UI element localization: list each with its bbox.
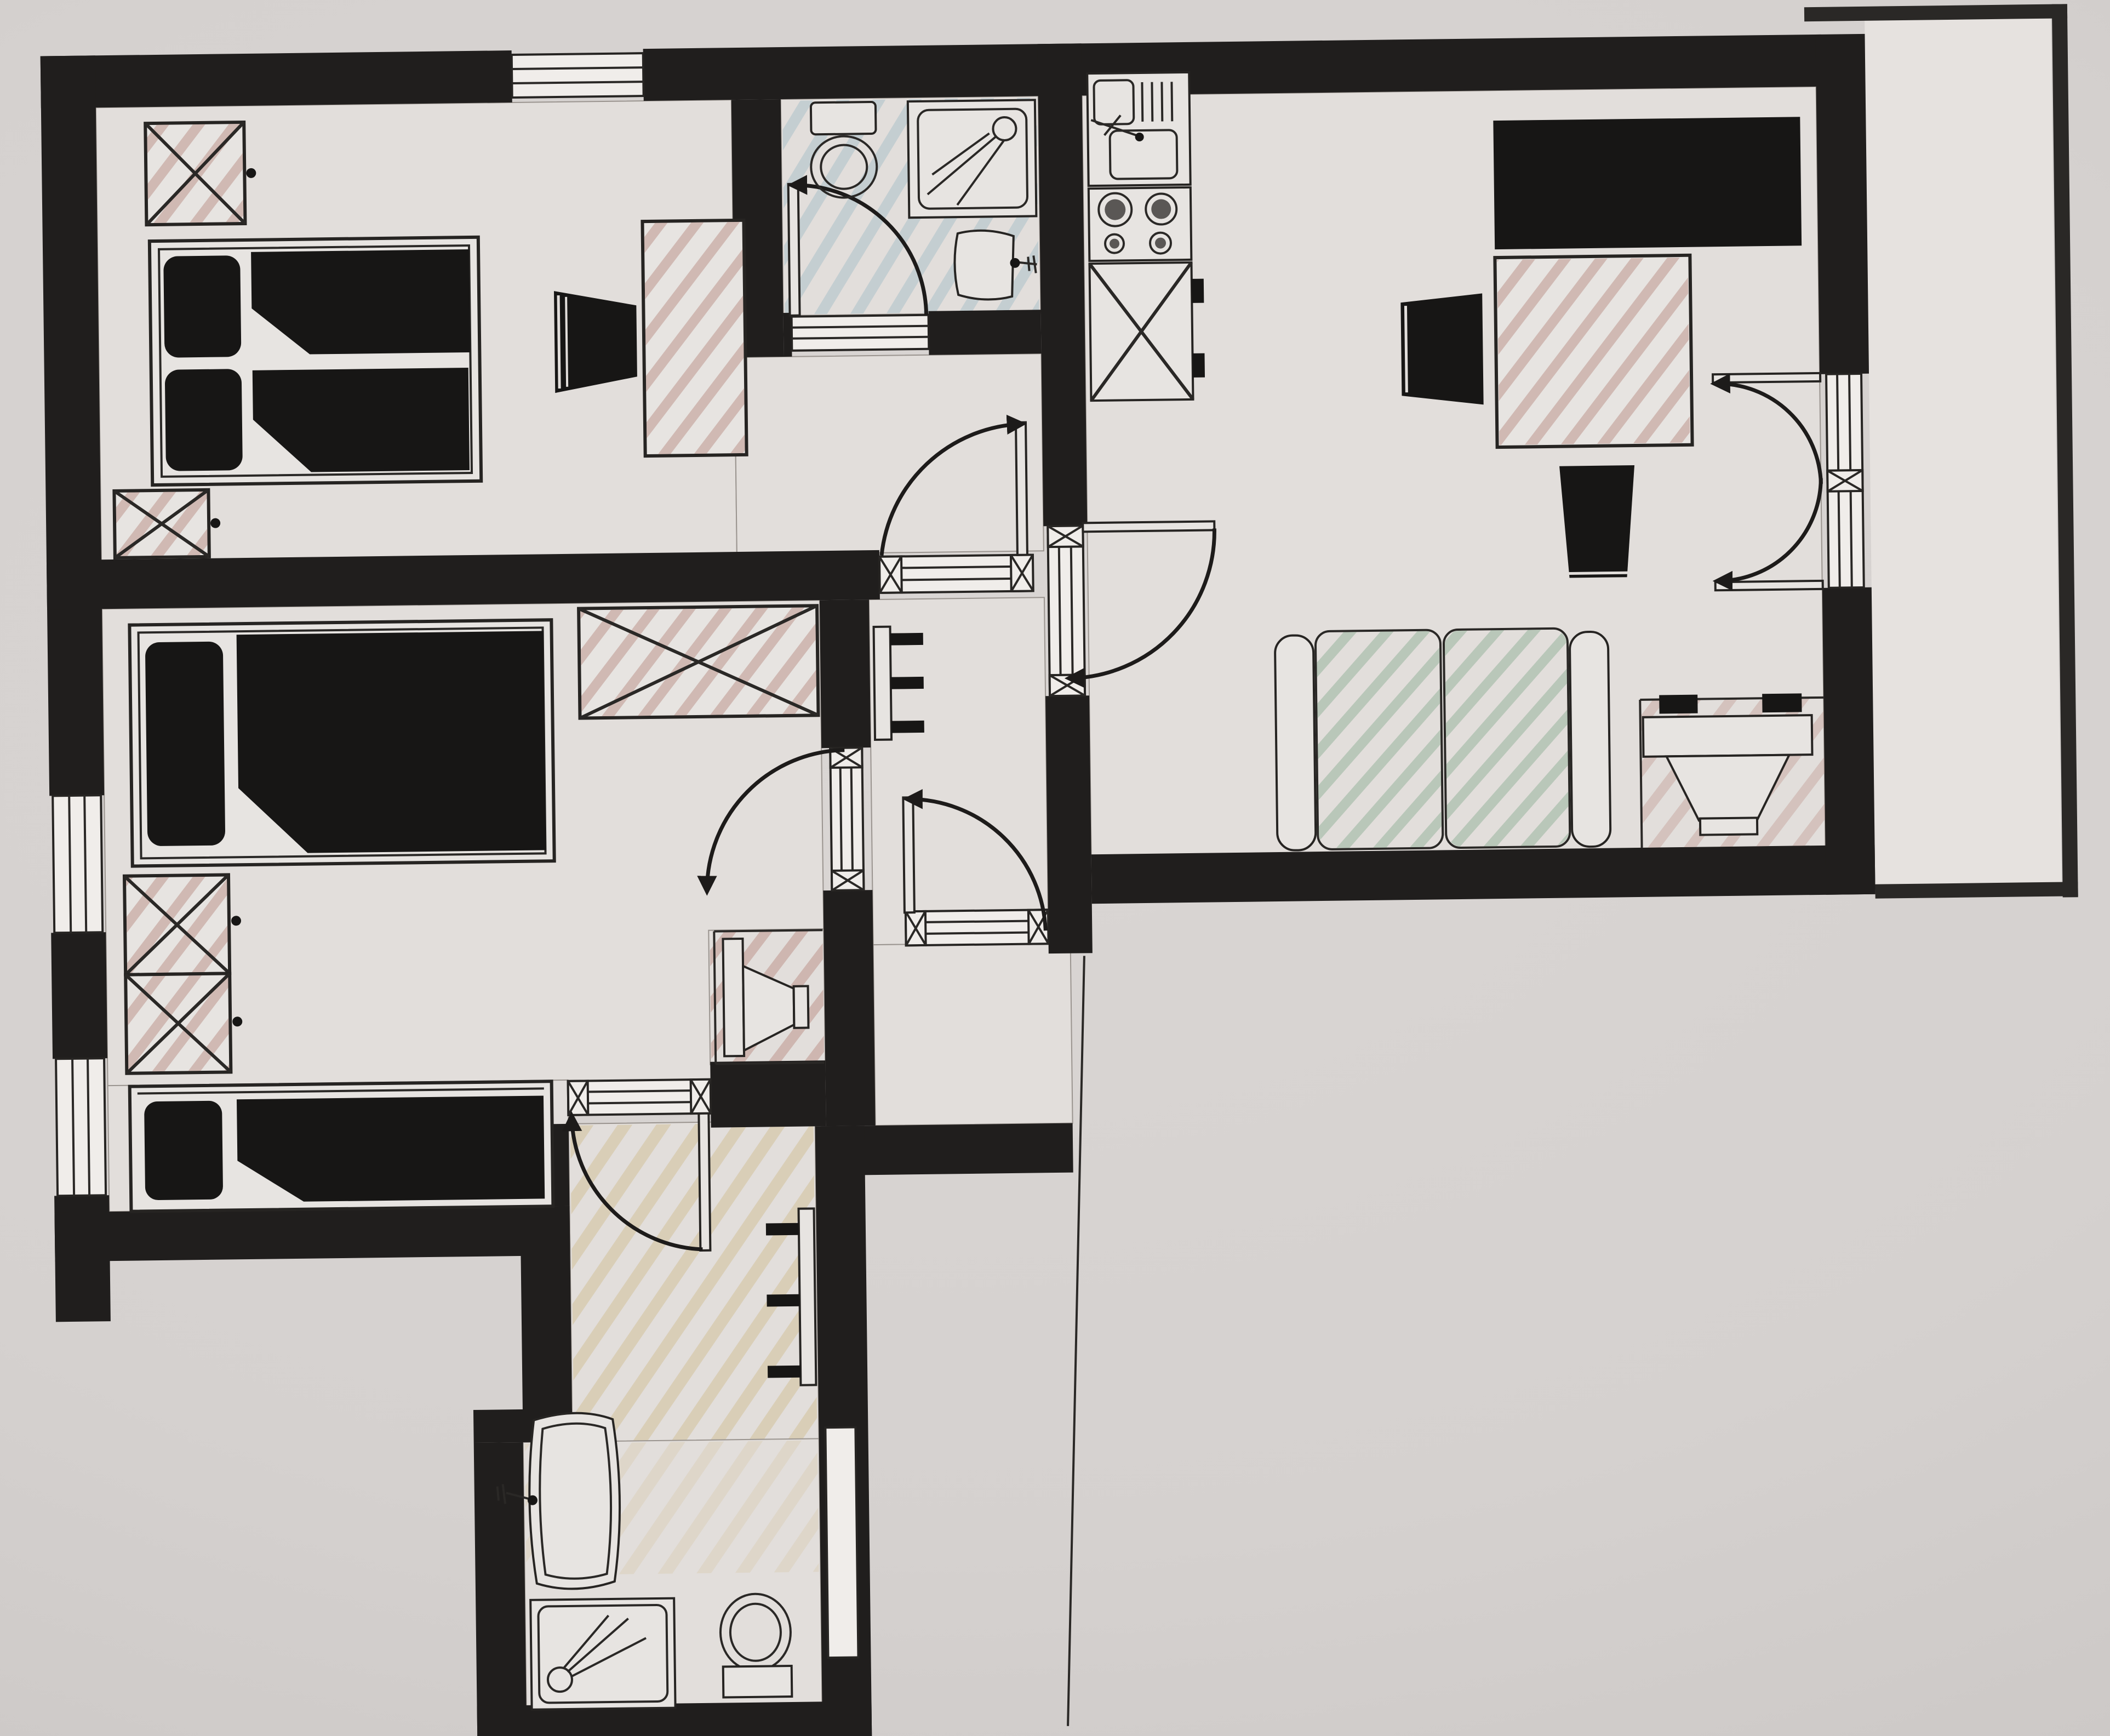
radiator-hall bbox=[874, 626, 925, 740]
duvet bbox=[237, 1095, 545, 1202]
bedroom2-east-wall-upper bbox=[820, 599, 871, 748]
radiator-fin bbox=[767, 1294, 799, 1307]
desk-living bbox=[1495, 255, 1692, 447]
balcony-wall-bottom bbox=[1875, 882, 2078, 899]
chair-trapezoid-south bbox=[1559, 465, 1636, 578]
desk-with-chair-southeast bbox=[1640, 693, 1825, 848]
bathroom-south-chunk-east bbox=[929, 310, 1042, 355]
pillow bbox=[144, 1101, 223, 1201]
bedroom2-east-wall-lower bbox=[823, 890, 875, 1126]
east-wall-duct-slot bbox=[825, 1427, 858, 1658]
desk-clip bbox=[1659, 695, 1697, 714]
door-leaf-lower bbox=[1716, 581, 1823, 590]
pillow-2 bbox=[165, 369, 243, 471]
wardrobe-x-box-1 bbox=[124, 875, 242, 975]
left-wall-upper bbox=[41, 55, 104, 796]
armrest-left bbox=[1275, 635, 1316, 850]
nightstand-x-box-bottom bbox=[114, 490, 220, 558]
door-leaf bbox=[1016, 422, 1027, 555]
counter-x-box bbox=[1089, 262, 1205, 401]
balcony-floor bbox=[1865, 18, 2061, 885]
door-leaf-upper bbox=[1713, 373, 1820, 382]
living-east-wall-upper bbox=[1815, 34, 1869, 374]
handle bbox=[1192, 279, 1204, 303]
toilet-tank bbox=[723, 1666, 792, 1698]
kitchen-sink-unit bbox=[1087, 72, 1190, 186]
cabinet-back-panel bbox=[723, 939, 744, 1056]
door-leaf bbox=[788, 184, 800, 316]
window-bedroom2-left-2 bbox=[56, 1058, 106, 1196]
bedroom1-bottom-wall bbox=[47, 550, 880, 610]
nightstand-x-box-top bbox=[145, 122, 256, 225]
bathroom-bottom-west-wall bbox=[474, 1442, 527, 1736]
floor-plan bbox=[0, 0, 2110, 1736]
living-west-wall-lower bbox=[1045, 695, 1093, 953]
radiator-fin bbox=[891, 721, 924, 733]
door-leaf bbox=[699, 1113, 710, 1250]
radiator-fin bbox=[766, 1223, 799, 1236]
single-bed-a bbox=[129, 620, 554, 866]
hall-center bbox=[874, 626, 925, 740]
bedroom2-bottom-wall bbox=[54, 1206, 570, 1261]
living-west-wall-upper bbox=[1038, 43, 1088, 526]
top-wall-west bbox=[41, 50, 512, 108]
wardrobe-x-long bbox=[579, 606, 818, 718]
photo-of-floor-plan bbox=[0, 0, 2110, 1736]
floor-plan-drawing bbox=[0, 0, 2110, 1736]
shower-tray bbox=[908, 100, 1037, 218]
vestibule-floor bbox=[873, 943, 1073, 1126]
radiator-fin bbox=[891, 677, 924, 689]
stove-4-burners bbox=[1089, 187, 1192, 261]
pillow-1 bbox=[163, 255, 241, 358]
door-leaf bbox=[1083, 521, 1214, 532]
window-bedroom2-left-1 bbox=[53, 795, 102, 933]
alcove-south-block bbox=[710, 1060, 826, 1128]
shower-tray-bottom bbox=[530, 1598, 675, 1710]
hall-floor bbox=[869, 597, 1049, 945]
radiator-fin bbox=[890, 633, 923, 646]
radiator-fin bbox=[768, 1366, 800, 1378]
corridor-west-wall bbox=[520, 1206, 572, 1426]
left-wall-mid bbox=[51, 932, 107, 1059]
desk-clip bbox=[1762, 693, 1802, 712]
duvet bbox=[237, 631, 546, 854]
handle bbox=[1192, 353, 1205, 378]
door-leaf bbox=[903, 797, 914, 912]
living-east-wall-lower bbox=[1822, 587, 1875, 895]
wardrobe-x-box-2 bbox=[125, 973, 243, 1073]
living-south-wall bbox=[1091, 845, 1875, 904]
chair-trapezoid-west bbox=[1400, 293, 1483, 406]
desk-chair-bedroom1 bbox=[554, 290, 637, 393]
armrest-right bbox=[1570, 632, 1611, 847]
window-bedroom1-top bbox=[512, 53, 644, 98]
desk-bedroom1 bbox=[642, 220, 746, 456]
pillow bbox=[145, 642, 226, 847]
black-bed-slab bbox=[1493, 117, 1802, 249]
single-bed-b bbox=[130, 1081, 553, 1211]
double-bed bbox=[150, 237, 481, 485]
desk-top bbox=[1643, 715, 1812, 757]
